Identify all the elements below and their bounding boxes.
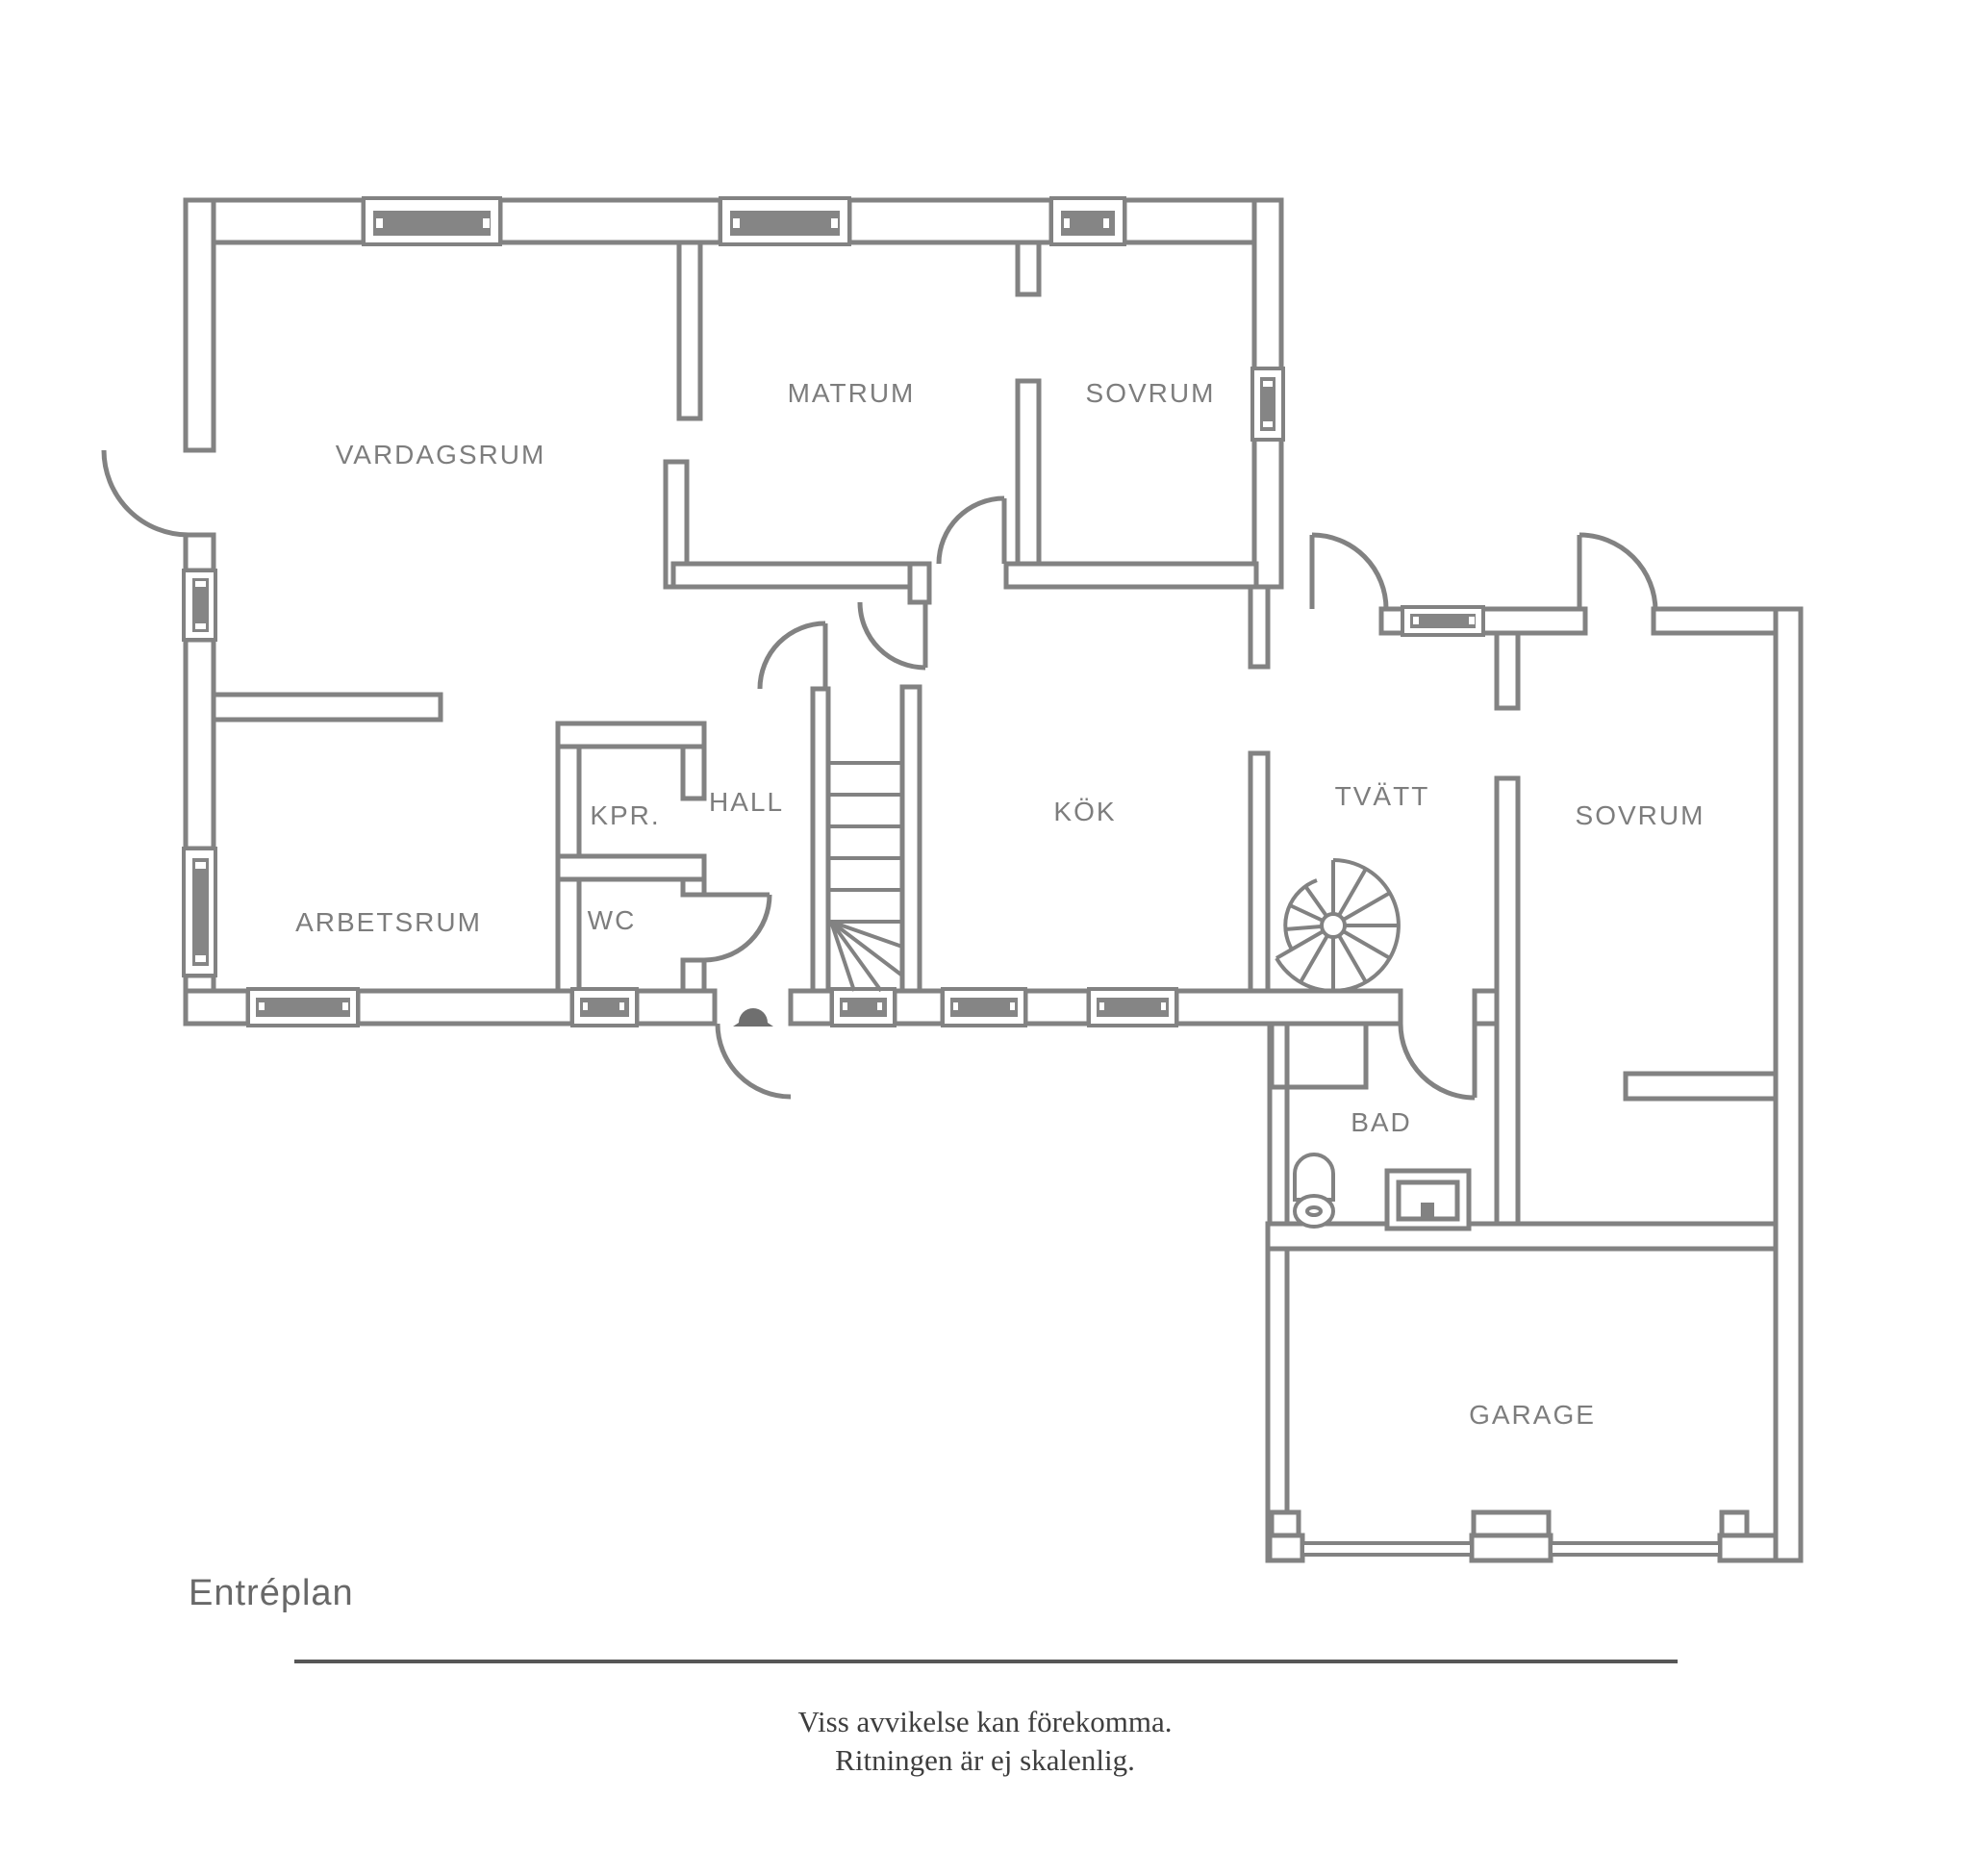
room-label-garage: GARAGE [1469,1400,1596,1430]
window-icon [184,570,215,640]
footer-disclaimer-line1: Viss avvikelse kan förekomma. [798,1705,1173,1738]
window-icon [1089,989,1176,1026]
window-icon [184,849,215,976]
room-label-wc: WC [588,905,637,935]
spiral-stairs-icon [1276,860,1399,991]
room-label-matrum: MATRUM [788,378,916,408]
door-arc [704,895,770,960]
room-label-tvatt: TVÄTT [1335,781,1430,811]
window-icon [832,989,895,1026]
room-label-sovrum-top: SOVRUM [1086,378,1216,408]
window-icon [364,198,500,244]
window-icon [1252,368,1283,440]
window-icon [943,989,1025,1026]
door-arc [104,450,189,535]
room-label-hall: HALL [709,787,784,817]
door-arc [860,602,925,668]
door-arc [1312,535,1386,609]
toilet-icon [1295,1154,1333,1227]
window-icon [1051,198,1124,244]
room-label-vardagsrum: VARDAGSRUM [336,440,546,469]
window-icon [248,989,358,1026]
room-label-arbetsrum: ARBETSRUM [295,907,482,937]
plan-title: Entréplan [189,1573,354,1613]
door-arc [760,623,825,689]
window-icon [572,989,637,1026]
straight-stairs [828,763,902,991]
room-label-kok: KÖK [1053,797,1116,826]
footer-disclaimer-line2: Ritningen är ej skalenlig. [835,1743,1135,1777]
window-icon [1402,607,1483,635]
door-arc [939,498,1004,564]
window-icon [720,198,849,244]
door-arc [1401,1024,1475,1098]
door-arc [1579,535,1655,611]
room-label-sovrum-right: SOVRUM [1576,800,1705,830]
room-label-bad: BAD [1351,1107,1412,1137]
sink-icon [1387,1171,1469,1229]
doorbell-icon [733,1008,773,1027]
walls [186,200,1801,1560]
floor-plan-page: VARDAGSRUM MATRUM SOVRUM ARBETSRUM KPR. … [0,0,1970,1876]
floor-plan-drawing: VARDAGSRUM MATRUM SOVRUM ARBETSRUM KPR. … [0,0,1970,1876]
windows [184,198,1720,1555]
room-label-kpr: KPR. [590,800,660,830]
door-arc [718,1024,791,1097]
